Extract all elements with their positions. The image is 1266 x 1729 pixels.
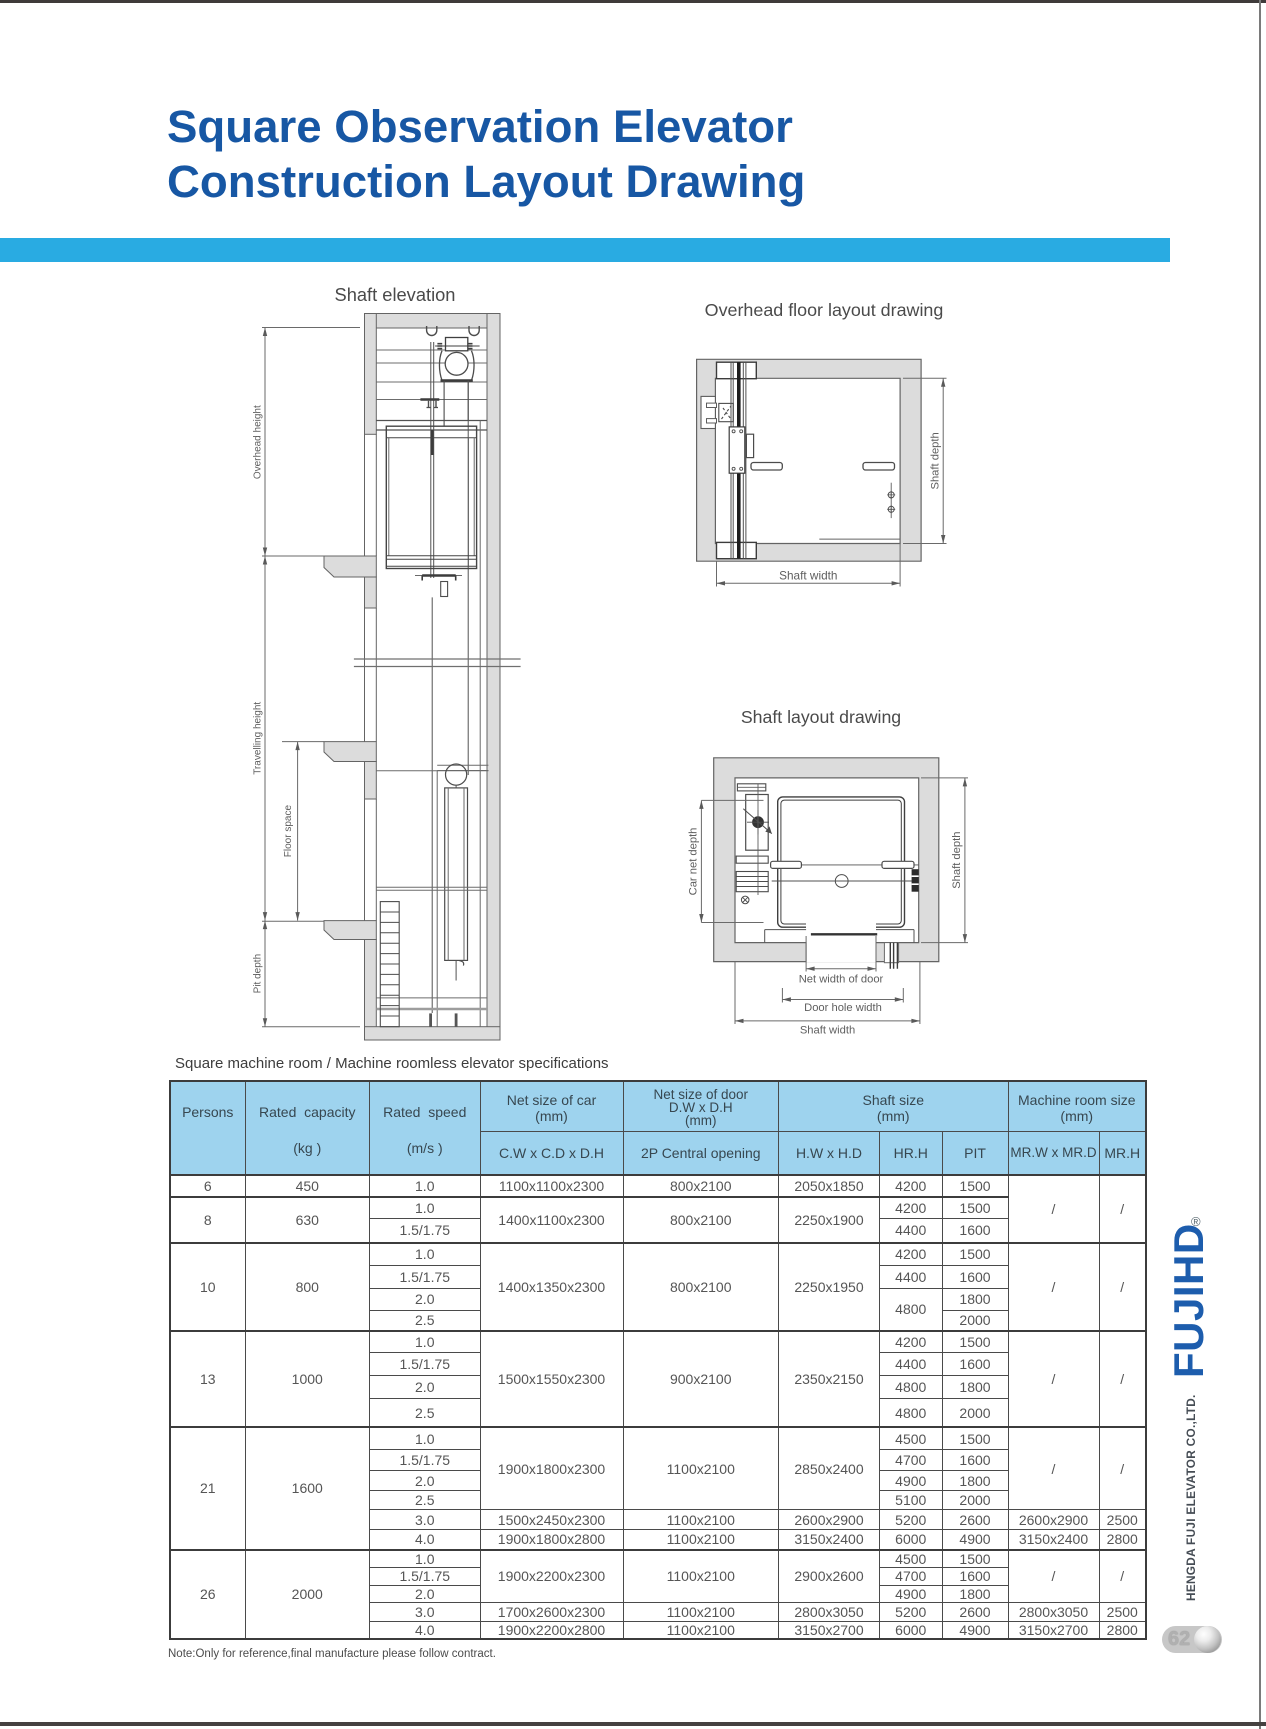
svg-text:Car net depth: Car net depth — [688, 828, 700, 896]
svg-text:Floor space: Floor space — [283, 805, 294, 858]
svg-text:Door hole width: Door hole width — [804, 1002, 882, 1014]
svg-text:Shaft depth: Shaft depth — [930, 432, 942, 489]
svg-text:Shaft elevation: Shaft elevation — [335, 284, 456, 305]
svg-text:Shaft width: Shaft width — [779, 569, 837, 583]
svg-text:Overhead height: Overhead height — [253, 405, 264, 479]
svg-text:Shaft width: Shaft width — [800, 1025, 855, 1037]
svg-text:Shaft layout drawing: Shaft layout drawing — [741, 707, 901, 727]
svg-text:Net width of door: Net width of door — [799, 974, 884, 986]
svg-text:Travelling height: Travelling height — [253, 702, 264, 775]
svg-text:Overhead floor layout drawing: Overhead floor layout drawing — [705, 300, 944, 320]
svg-text:Shaft depth: Shaft depth — [951, 832, 963, 889]
svg-text:Pit depth: Pit depth — [253, 954, 264, 993]
